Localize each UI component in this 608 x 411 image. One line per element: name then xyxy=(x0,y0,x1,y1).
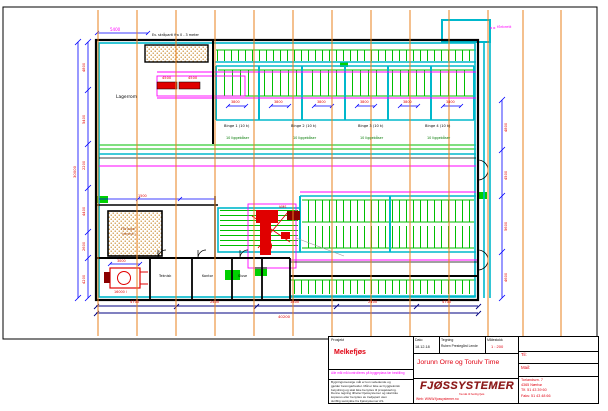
divider xyxy=(413,353,518,354)
project-value: Melkefjøs xyxy=(334,349,366,356)
fjossystemer-logo: FJØSSYSTEMER xyxy=(420,381,514,393)
scale-value: 1 : 200 xyxy=(491,345,503,349)
logo-tagline: fra idé til ferdig fjøs xyxy=(459,393,484,396)
address-line: Faks: 51 43 48 66 xyxy=(521,394,551,399)
dimension-lines-navy xyxy=(94,304,481,316)
divider xyxy=(485,337,486,353)
disclaimer-line: skriftlig samtykke fra Fjøssystemer AS. xyxy=(331,400,400,404)
address-line: Tlf. 51 43 39 60 xyxy=(521,388,551,393)
divider xyxy=(518,376,598,377)
hatched-areas xyxy=(108,45,208,256)
company-address: Torlandsvn. 7 4365 Nærbø Tlf. 51 43 39 6… xyxy=(521,378,551,399)
divider xyxy=(518,363,598,364)
divider xyxy=(518,351,598,352)
mail-label: Mail: xyxy=(521,366,530,371)
project-label: Prosjekt xyxy=(331,339,344,343)
date-label: Dato xyxy=(415,339,422,343)
drawn-by-value: Ruben Prestegård Lende xyxy=(441,345,478,348)
title-block: Prosjekt Melkefjøs Alle mål må kontrolle… xyxy=(328,336,599,404)
web-address: Web: WWW.fjossystemer.no xyxy=(416,398,459,402)
customer-name: Jorunn Orre og Torulv Time xyxy=(417,359,499,366)
notice-text: Alle mål må kontrolleres på byggeplass f… xyxy=(331,372,405,375)
scale-label: Målestokk xyxy=(487,339,503,343)
divider xyxy=(439,337,440,353)
drawn-by-label: Tegning xyxy=(441,339,453,343)
to-label: Til: xyxy=(521,353,527,358)
divider xyxy=(413,378,518,379)
drawing-sheet: 5400Ev. skråparti fra 0 - 3 meterfôrbret… xyxy=(0,0,608,411)
disclaimer-text: Bygningsmessige mål er kun veiledende og… xyxy=(331,381,400,404)
date-value: 18.12.18 xyxy=(415,345,430,349)
divider xyxy=(329,369,413,370)
divider xyxy=(413,337,414,403)
divider xyxy=(518,337,519,403)
